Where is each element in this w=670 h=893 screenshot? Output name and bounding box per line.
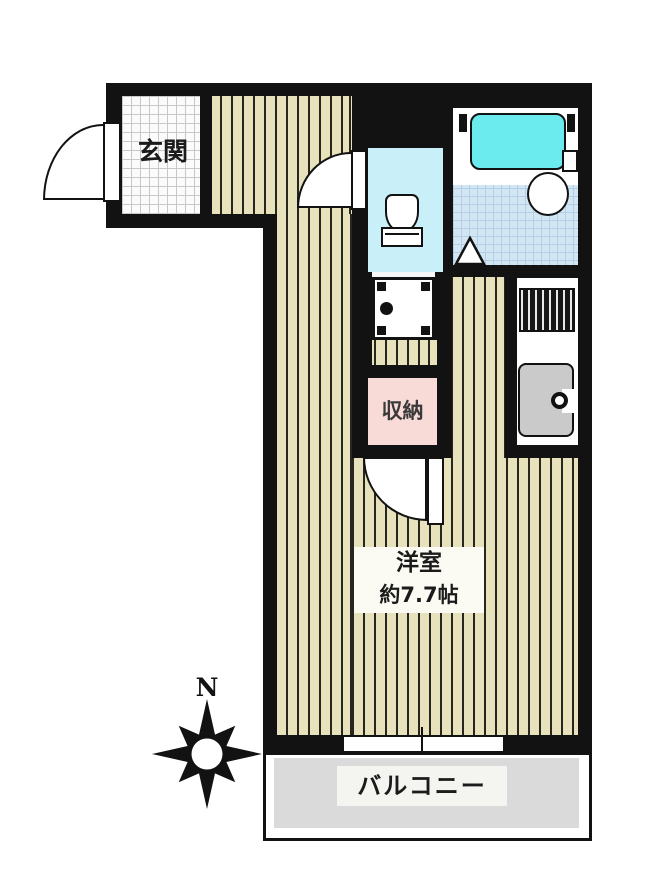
gas-stove <box>519 288 575 332</box>
sink-faucet-center <box>555 396 564 405</box>
balcony-label: バルコニー <box>337 766 507 806</box>
room-door-leaf <box>427 457 444 525</box>
room-floor-left-column <box>277 214 352 735</box>
toilet-tank-line <box>385 233 419 235</box>
bathroom-door-mark <box>454 236 486 266</box>
entrance-door-swing-arc <box>43 124 103 200</box>
storage-label: 収納 <box>368 396 437 426</box>
pan-corner <box>377 282 386 291</box>
washing-machine-pan <box>372 277 435 340</box>
compass-center-hole <box>192 739 223 770</box>
toilet-tank <box>381 227 423 247</box>
main-room-label: 洋室 約7.7帖 <box>354 547 484 613</box>
floor-plan: バルコニー 玄関 収納 洋室 約7.7帖 N <box>0 0 670 893</box>
bathtub-fitting-right <box>567 114 575 132</box>
bathtub-fitting-left <box>459 114 467 132</box>
bath-faucet-box <box>562 150 578 172</box>
pan-corner <box>421 282 430 291</box>
main-room-name: 洋室 <box>354 547 484 580</box>
bathtub <box>470 113 566 170</box>
compass-north-label: N <box>196 673 219 702</box>
main-room-size: 約7.7帖 <box>354 580 484 610</box>
toilet-door-leaf <box>351 150 367 210</box>
compass-rose: N <box>140 662 275 822</box>
floor-strip-front-of-storage <box>372 340 437 365</box>
room-floor-corridor <box>452 277 505 458</box>
wash-basin <box>527 172 569 216</box>
pan-drain <box>380 302 393 315</box>
balcony-window <box>342 735 505 753</box>
entrance-label: 玄関 <box>125 135 201 169</box>
pan-corner <box>421 326 430 335</box>
pan-corner <box>377 326 386 335</box>
entrance-door-leaf <box>103 122 121 202</box>
